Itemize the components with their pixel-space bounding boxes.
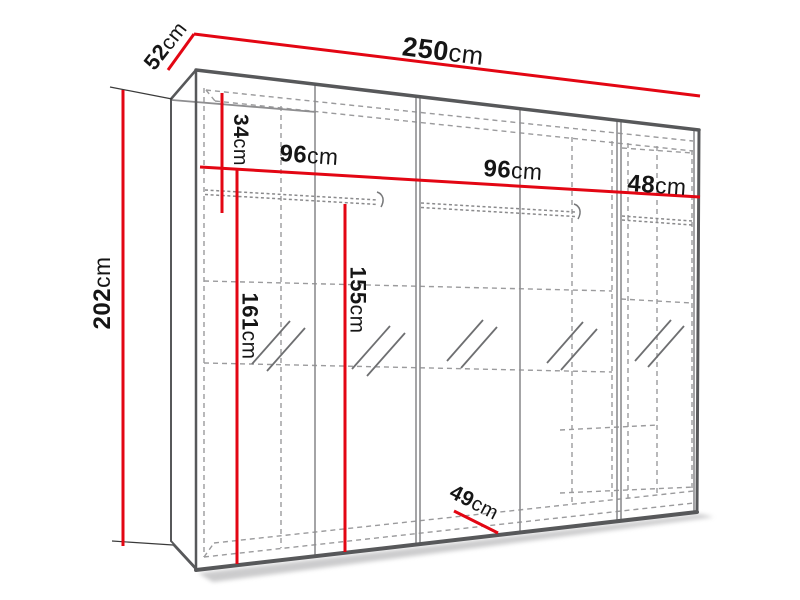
dim-label-left-section-width: 96cm [279,142,340,170]
dimension-lines [123,34,700,564]
hanging-rails [205,190,692,225]
dim-label-total-height: 202cm [91,257,115,330]
dim-label-top-shelf: 34cm [229,114,251,166]
dim-label-hanging-height-1: 161cm [238,292,261,359]
dim-label-hanging-height-2: 155cm [346,266,369,333]
dimension-line-sections-96-96-48 [200,167,700,197]
dim-label-right-section-width: 48cm [627,172,688,200]
dim-label-middle-section-width: 96cm [483,157,544,185]
wardrobe-dimension-diagram: 250cm 52cm 202cm 34cm 96cm 96cm 48cm 161… [0,0,800,600]
mirror-hatch-marks [252,320,684,376]
floor-shadow [198,514,714,582]
wardrobe-drawing [0,0,800,600]
extension-lines [110,87,173,545]
